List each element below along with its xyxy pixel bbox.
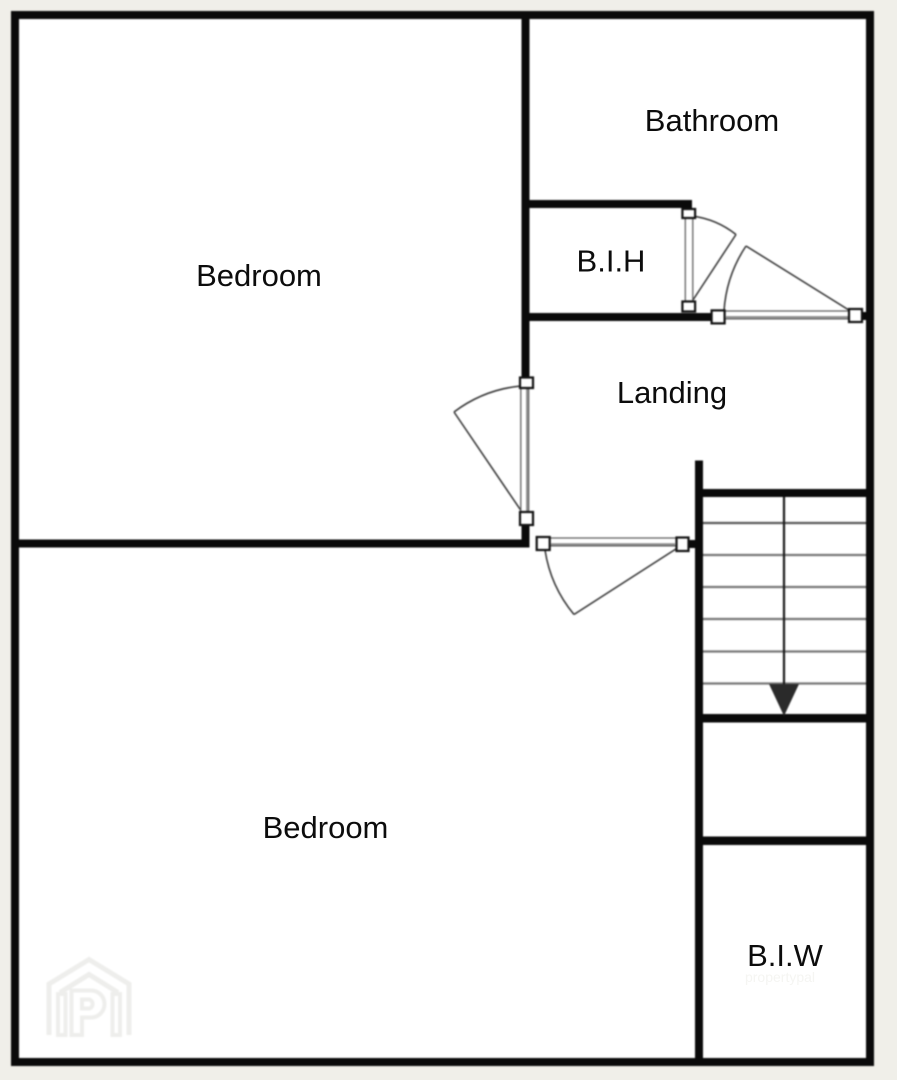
- svg-text:B.I.W: B.I.W: [747, 938, 824, 973]
- svg-text:Bedroom: Bedroom: [263, 810, 389, 845]
- svg-text:Bedroom: Bedroom: [196, 258, 322, 293]
- svg-text:Landing: Landing: [617, 375, 727, 410]
- svg-text:Bathroom: Bathroom: [645, 103, 779, 138]
- svg-text:propertypal: propertypal: [745, 969, 815, 985]
- svg-text:B.I.H: B.I.H: [577, 244, 646, 279]
